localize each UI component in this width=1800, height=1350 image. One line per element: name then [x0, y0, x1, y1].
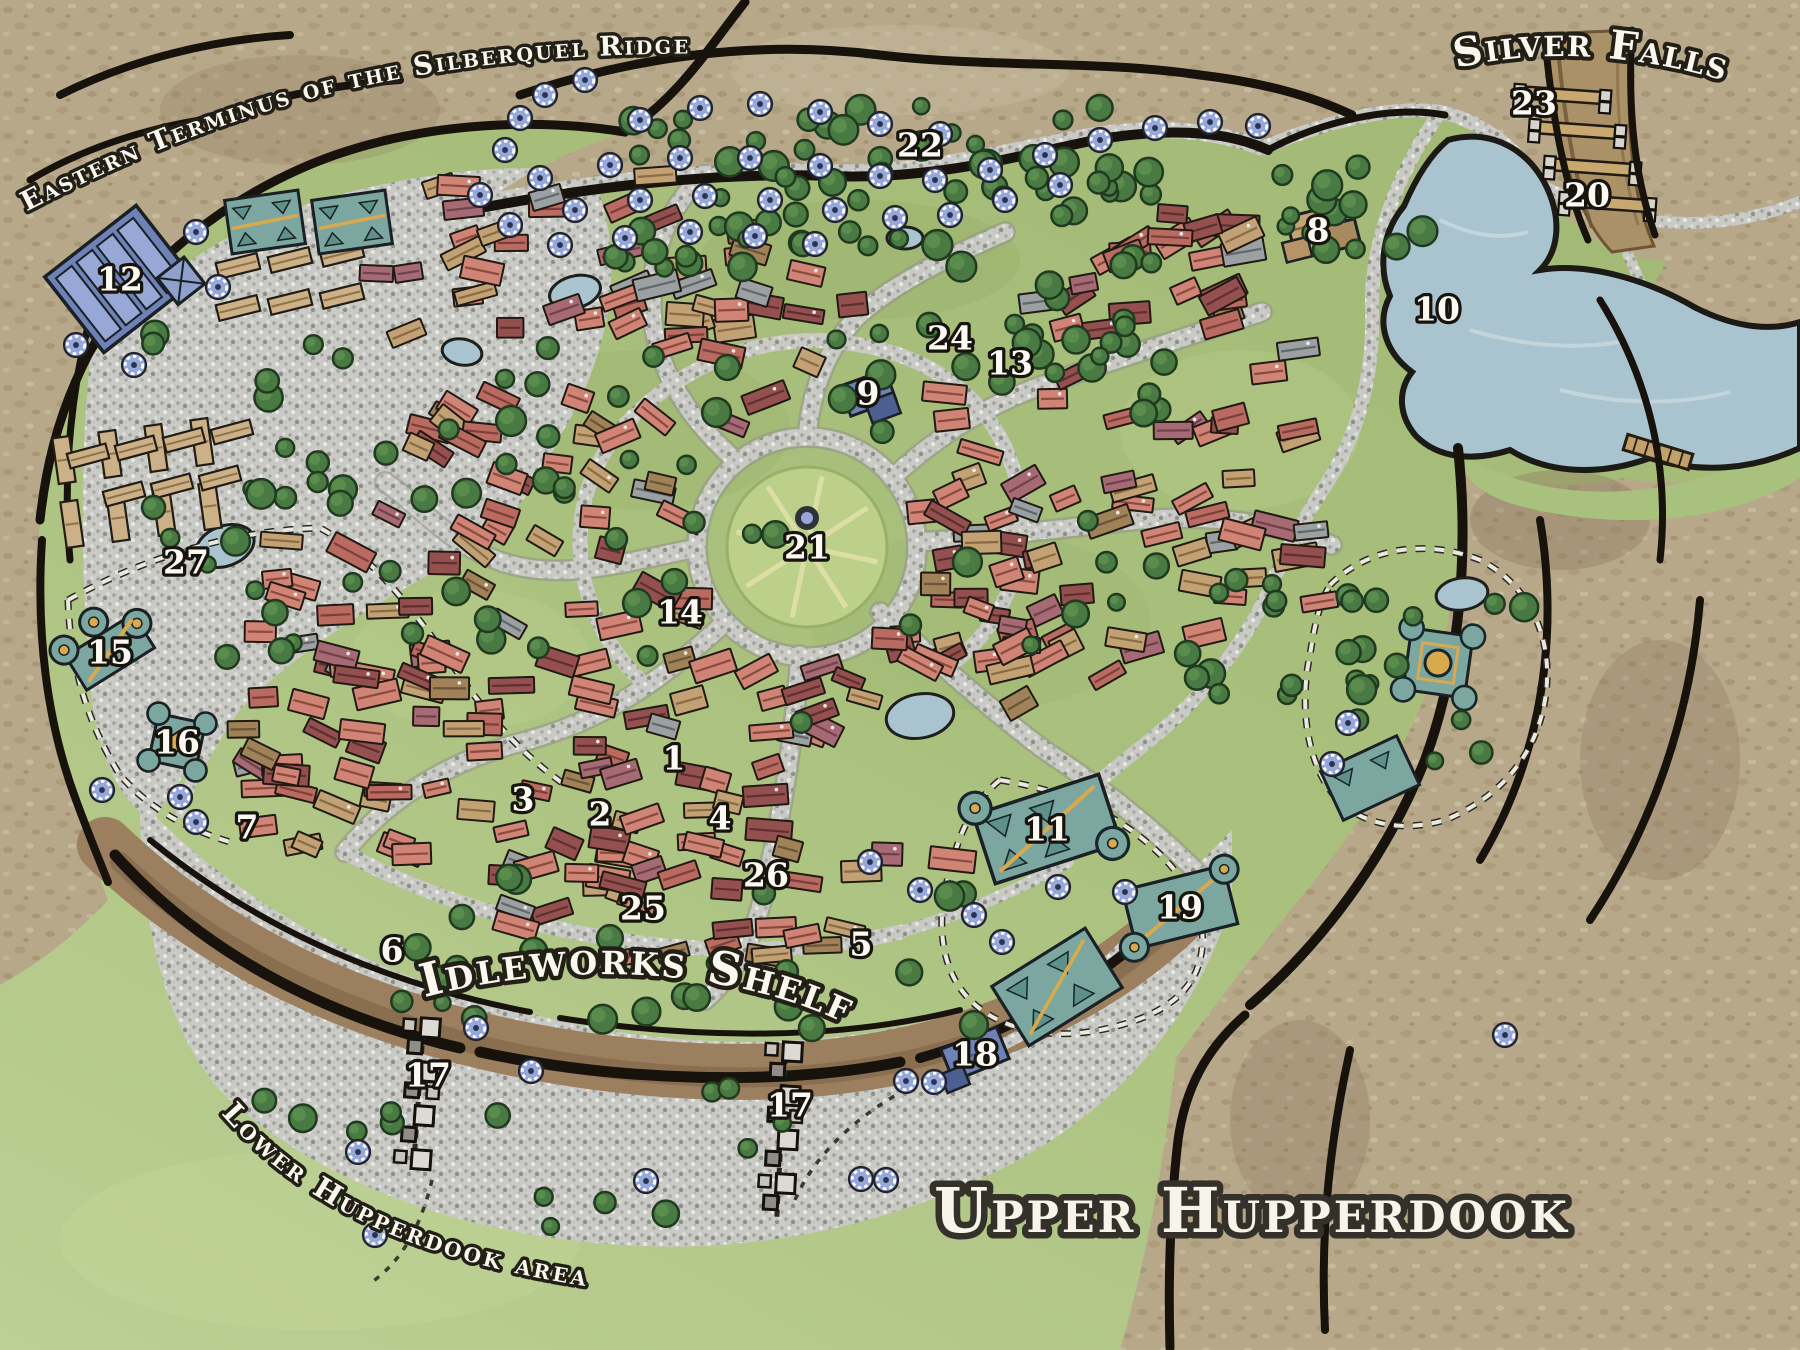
- tree: [588, 1005, 617, 1034]
- map-marker-25[interactable]: 25: [620, 889, 666, 928]
- gear-icon: [64, 333, 88, 357]
- tree: [871, 325, 888, 342]
- tree: [528, 638, 548, 658]
- tree: [496, 370, 514, 388]
- gear-icon: [548, 233, 572, 257]
- tree: [791, 712, 812, 733]
- tree: [1054, 111, 1073, 130]
- gear-icon: [168, 785, 192, 809]
- tree: [1283, 207, 1299, 223]
- gear-icon: [894, 1069, 918, 1093]
- tree: [1142, 253, 1161, 272]
- house: [921, 573, 950, 596]
- tree: [1088, 172, 1110, 194]
- tree: [1185, 666, 1209, 690]
- house: [272, 765, 301, 786]
- house: [444, 721, 484, 736]
- gear-icon: [962, 903, 986, 927]
- tree: [829, 115, 858, 144]
- tree: [246, 479, 275, 508]
- house: [837, 292, 869, 318]
- gear-icon: [184, 810, 208, 834]
- tree: [953, 548, 982, 577]
- house: [1250, 360, 1287, 384]
- map-marker-21[interactable]: 21: [784, 528, 830, 567]
- gear-icon: [868, 112, 892, 136]
- tree: [1225, 569, 1247, 591]
- tree: [684, 512, 705, 533]
- tree: [1273, 165, 1293, 185]
- gear-icon: [758, 188, 782, 212]
- map-marker-27[interactable]: 27: [163, 543, 209, 582]
- house: [711, 878, 743, 901]
- gear-icon: [908, 878, 932, 902]
- gear-icon: [184, 220, 208, 244]
- tree: [215, 645, 239, 669]
- gear-icon: [1046, 875, 1070, 899]
- tree: [439, 420, 459, 440]
- gear-icon: [678, 220, 702, 244]
- house: [497, 318, 523, 338]
- tree: [1062, 326, 1089, 353]
- gear-icon: [508, 106, 532, 130]
- tree: [1408, 216, 1438, 246]
- tree: [859, 236, 878, 255]
- map-marker-3[interactable]: 3: [512, 780, 535, 819]
- tree: [247, 582, 264, 599]
- house: [1222, 469, 1254, 487]
- house: [1280, 544, 1326, 567]
- tree: [275, 487, 296, 508]
- map-marker-10[interactable]: 10: [1414, 290, 1460, 329]
- tree: [935, 881, 964, 910]
- tree: [333, 348, 353, 368]
- house: [1157, 204, 1188, 224]
- gear-icon: [668, 146, 692, 170]
- tree: [1210, 584, 1228, 602]
- gear-icon: [533, 83, 557, 107]
- tree: [307, 451, 329, 473]
- tree: [142, 496, 165, 519]
- tree: [452, 479, 481, 508]
- house: [260, 532, 303, 550]
- tree: [719, 1078, 739, 1098]
- tree: [380, 561, 401, 582]
- tree: [702, 398, 731, 427]
- tree: [1346, 240, 1364, 258]
- map-marker-26[interactable]: 26: [743, 856, 789, 895]
- house: [457, 799, 495, 822]
- tree: [537, 425, 559, 447]
- tree: [1384, 234, 1410, 260]
- gear-icon: [874, 1168, 898, 1192]
- house: [399, 598, 432, 615]
- gear-icon: [738, 146, 762, 170]
- tree: [839, 221, 860, 242]
- tree: [1026, 167, 1048, 189]
- tree: [871, 420, 893, 442]
- tree: [1141, 184, 1161, 204]
- tree: [1210, 684, 1229, 703]
- house: [1294, 521, 1329, 540]
- house: [413, 707, 439, 726]
- house: [1154, 422, 1193, 440]
- tree: [896, 959, 922, 985]
- map-marker-18[interactable]: 18: [952, 1035, 998, 1074]
- city-map-canvas: Eastern Terminus of the Silberquel Ridge…: [0, 0, 1800, 1350]
- map-marker-13[interactable]: 13: [987, 344, 1033, 383]
- house: [228, 721, 260, 738]
- gear-icon: [858, 850, 882, 874]
- tree: [1046, 364, 1064, 382]
- gear-icon: [628, 108, 652, 132]
- gear-icon: [519, 1059, 543, 1083]
- gear-icon: [849, 1167, 873, 1191]
- tree: [1341, 590, 1362, 611]
- tree: [653, 1201, 679, 1227]
- tree: [289, 1104, 316, 1131]
- gear-icon: [993, 188, 1017, 212]
- tree: [450, 905, 474, 929]
- house: [430, 677, 469, 699]
- tree: [344, 573, 362, 591]
- tree: [1470, 741, 1492, 763]
- map-marker-16[interactable]: 16: [154, 723, 200, 762]
- house: [922, 381, 967, 404]
- tree: [605, 528, 627, 550]
- house: [1038, 389, 1067, 409]
- tree: [922, 230, 952, 260]
- house: [928, 846, 976, 873]
- tree: [913, 98, 929, 114]
- gear-icon: [1336, 711, 1360, 735]
- tree: [221, 527, 250, 556]
- house: [428, 551, 460, 574]
- house: [489, 677, 535, 694]
- house: [317, 604, 354, 626]
- upper-hupperdook-map: Eastern Terminus of the Silberquel Ridge…: [0, 0, 1800, 1350]
- map-marker-17[interactable]: 17: [767, 1086, 813, 1125]
- gear-icon: [1198, 110, 1222, 134]
- tree: [944, 180, 967, 203]
- tree: [328, 491, 353, 516]
- tree: [1452, 711, 1470, 729]
- map-marker-14[interactable]: 14: [657, 593, 703, 632]
- tree: [829, 385, 857, 413]
- house: [249, 687, 279, 708]
- map-marker-19[interactable]: 19: [1157, 888, 1203, 927]
- house: [359, 265, 393, 282]
- tree: [542, 1218, 559, 1235]
- tree: [784, 203, 808, 227]
- tree: [525, 372, 549, 396]
- gear-icon: [743, 224, 767, 248]
- tree: [630, 146, 649, 165]
- tree: [496, 865, 522, 891]
- map-marker-2[interactable]: 2: [589, 795, 612, 834]
- house: [392, 843, 431, 865]
- gear-icon: [938, 203, 962, 227]
- tree: [1111, 252, 1137, 278]
- house: [367, 785, 412, 800]
- tree: [1108, 594, 1125, 611]
- tree: [1365, 589, 1388, 612]
- tree: [642, 239, 667, 264]
- map-marker-23[interactable]: 23: [1511, 84, 1557, 123]
- map-marker-22[interactable]: 22: [897, 126, 943, 165]
- tree: [1404, 607, 1422, 625]
- tree: [643, 346, 663, 366]
- house: [715, 298, 749, 322]
- tree: [1312, 170, 1342, 200]
- tree: [715, 355, 740, 380]
- gear-icon: [688, 96, 712, 120]
- map-marker-12[interactable]: 12: [97, 260, 143, 299]
- map-title: Upper Hupperdook: [934, 1174, 1570, 1247]
- gear-icon: [868, 164, 892, 188]
- tree: [1347, 156, 1370, 179]
- gear-icon: [498, 213, 522, 237]
- gear-icon: [693, 184, 717, 208]
- tree: [1426, 753, 1443, 770]
- tree: [1151, 350, 1176, 375]
- tree: [1091, 348, 1108, 365]
- gear-icon: [748, 92, 772, 116]
- tree: [1266, 591, 1286, 611]
- tree: [900, 614, 921, 635]
- tree: [375, 442, 398, 465]
- gear-icon: [883, 206, 907, 230]
- house: [1069, 273, 1098, 295]
- gear-icon: [990, 930, 1014, 954]
- tree: [776, 167, 795, 186]
- map-marker-4[interactable]: 4: [709, 799, 732, 838]
- gear-icon: [1493, 1023, 1517, 1047]
- tree: [848, 190, 868, 210]
- house: [393, 262, 423, 283]
- tree: [1175, 641, 1200, 666]
- gear-icon: [1320, 752, 1344, 776]
- tree: [621, 451, 638, 468]
- map-marker-5[interactable]: 5: [850, 925, 873, 964]
- tree: [256, 369, 279, 392]
- tree: [1347, 675, 1376, 704]
- map-marker-1[interactable]: 1: [663, 739, 686, 778]
- tree: [676, 246, 697, 267]
- house: [565, 601, 598, 617]
- tree: [1036, 271, 1063, 298]
- gear-icon: [528, 166, 552, 190]
- gear-icon: [634, 1169, 658, 1193]
- tree: [496, 454, 516, 474]
- house: [339, 719, 386, 744]
- structure-warehouse: [225, 190, 306, 254]
- tree: [412, 486, 437, 511]
- tree: [1385, 654, 1408, 677]
- map-marker-15[interactable]: 15: [87, 633, 133, 672]
- gear-icon: [1143, 116, 1167, 140]
- tree: [1096, 552, 1116, 572]
- gear-icon: [122, 353, 146, 377]
- tree: [537, 337, 559, 359]
- tree: [946, 252, 976, 282]
- map-marker-17[interactable]: 17: [405, 1056, 451, 1095]
- gear-icon: [922, 1070, 946, 1094]
- tree: [1078, 511, 1098, 531]
- map-marker-8[interactable]: 8: [1307, 211, 1330, 250]
- tree: [1087, 95, 1113, 121]
- tree: [743, 525, 761, 543]
- house: [580, 505, 610, 529]
- tree: [1062, 601, 1089, 628]
- house: [565, 864, 598, 882]
- tree: [554, 477, 575, 498]
- map-marker-20[interactable]: 20: [1564, 176, 1610, 215]
- tree: [142, 333, 164, 355]
- tree: [1023, 636, 1040, 653]
- gear-icon: [563, 198, 587, 222]
- house: [934, 408, 970, 432]
- gear-icon: [613, 226, 637, 250]
- tree: [662, 569, 687, 594]
- gear-icon: [464, 1016, 488, 1040]
- tree: [739, 1139, 757, 1157]
- gear-icon: [1033, 143, 1057, 167]
- tree: [1485, 594, 1505, 614]
- tree: [728, 253, 756, 281]
- house: [1148, 228, 1193, 246]
- tree: [594, 1192, 615, 1213]
- tree: [443, 578, 470, 605]
- tree: [381, 1102, 401, 1122]
- house: [743, 784, 789, 807]
- map-marker-11[interactable]: 11: [1024, 810, 1070, 849]
- tree: [1144, 554, 1169, 579]
- gear-icon: [808, 100, 832, 124]
- gear-icon: [1088, 128, 1112, 152]
- house: [574, 737, 606, 755]
- gear-icon: [803, 232, 827, 256]
- gear-icon: [823, 198, 847, 222]
- map-marker-9[interactable]: 9: [857, 374, 880, 413]
- tree: [496, 406, 526, 436]
- tree: [678, 456, 696, 474]
- gear-icon: [468, 183, 492, 207]
- tree: [1134, 158, 1162, 186]
- tree: [347, 1122, 366, 1141]
- tree: [262, 600, 287, 625]
- house: [712, 919, 753, 939]
- map-marker-7[interactable]: 7: [236, 808, 259, 847]
- tree: [1340, 191, 1367, 218]
- tree: [391, 991, 412, 1012]
- tree: [1130, 400, 1156, 426]
- tree: [253, 1089, 277, 1113]
- gear-icon: [346, 1140, 370, 1164]
- tree: [890, 230, 908, 248]
- gear-icon: [598, 153, 622, 177]
- tree: [623, 589, 651, 617]
- tree: [1051, 205, 1072, 226]
- gear-icon: [808, 154, 832, 178]
- gear-icon: [628, 188, 652, 212]
- tree: [486, 1103, 510, 1127]
- structure-warehouse: [312, 190, 393, 254]
- house: [749, 722, 793, 741]
- tree: [535, 1188, 553, 1206]
- gear-icon: [90, 778, 114, 802]
- tree: [638, 646, 658, 666]
- tree: [828, 331, 846, 349]
- gear-icon: [1048, 173, 1072, 197]
- tree: [608, 386, 628, 406]
- tree: [304, 335, 323, 354]
- gear-icon: [206, 275, 230, 299]
- tree: [276, 439, 294, 457]
- tree: [269, 638, 294, 663]
- gear-icon: [493, 138, 517, 162]
- house: [467, 742, 503, 761]
- gear-icon: [978, 158, 1002, 182]
- tree: [402, 623, 423, 644]
- gear-icon: [573, 68, 597, 92]
- tree: [1115, 317, 1134, 336]
- tree: [1510, 593, 1538, 621]
- tree: [1281, 675, 1302, 696]
- map-marker-6[interactable]: 6: [381, 931, 404, 970]
- gear-icon: [1246, 114, 1270, 138]
- map-marker-24[interactable]: 24: [927, 319, 973, 358]
- tree: [308, 472, 328, 492]
- gear-icon: [923, 168, 947, 192]
- house: [634, 166, 677, 186]
- tree: [475, 607, 500, 632]
- gear-icon: [1113, 880, 1137, 904]
- tree: [1337, 640, 1361, 664]
- tree: [633, 998, 661, 1026]
